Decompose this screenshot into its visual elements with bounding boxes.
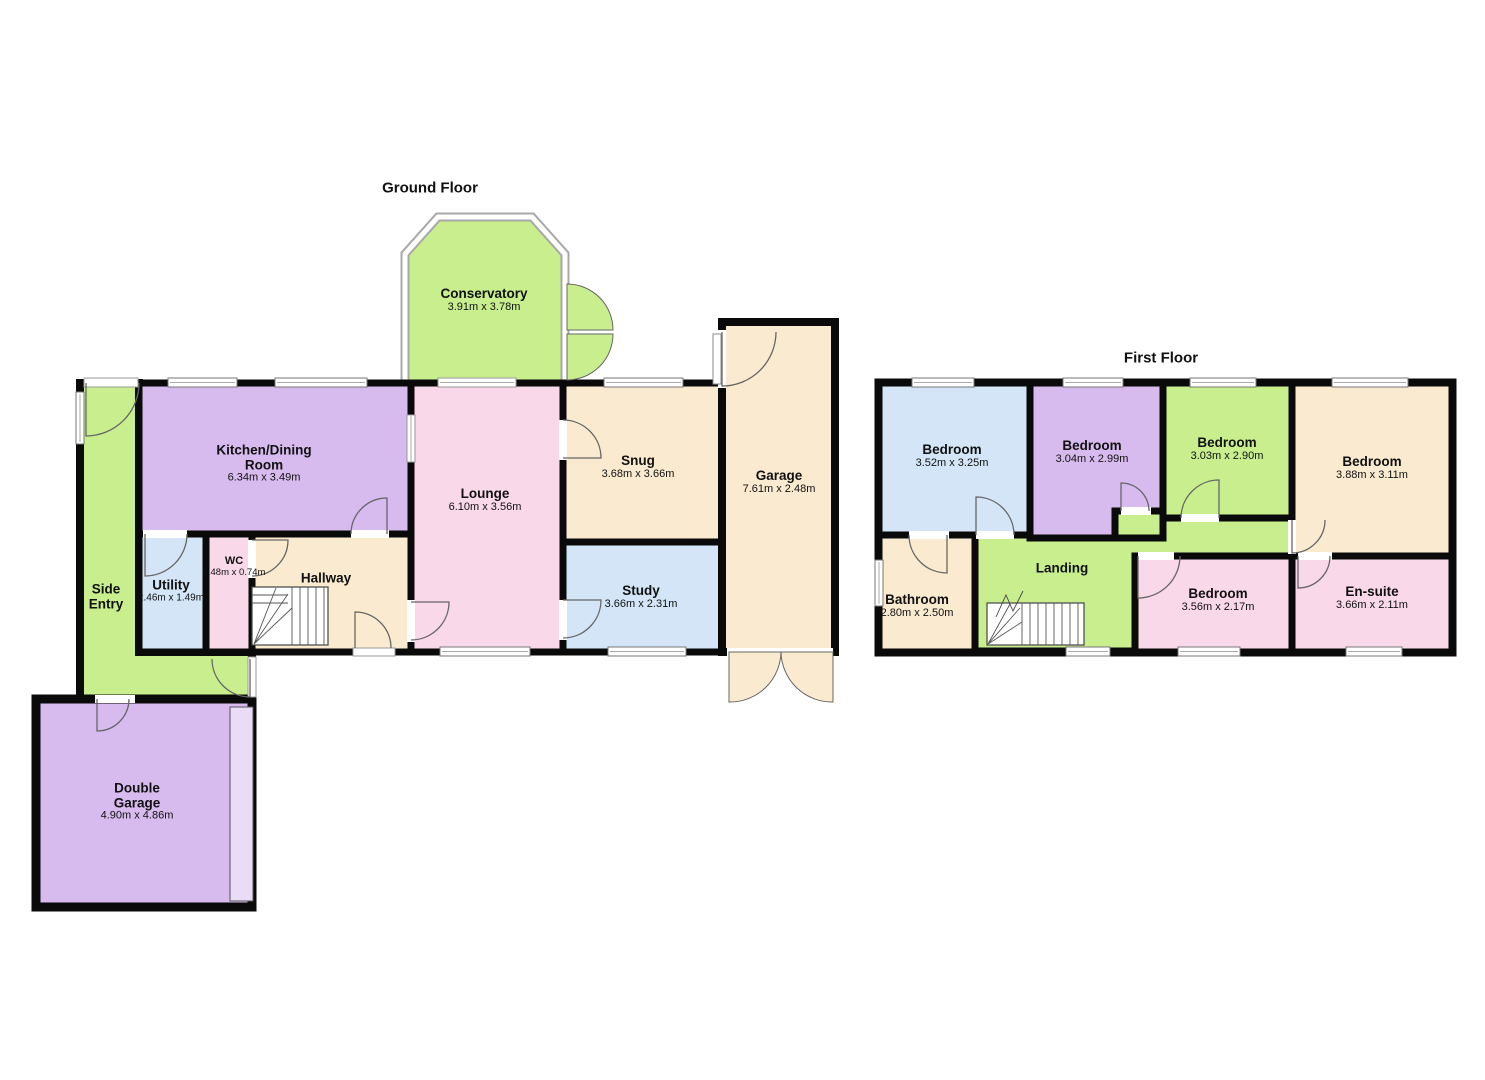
label-bedroom2: Bedroom 3.04m x 2.99m: [1032, 439, 1152, 465]
label-study: Study 3.66m x 2.31m: [581, 584, 701, 610]
label-bedroom5: Bedroom 3.56m x 2.17m: [1158, 587, 1278, 613]
label-landing: Landing: [1012, 562, 1112, 577]
garage-double-doors: [729, 652, 833, 702]
label-utility: Utility 2.46m x 1.49m: [126, 578, 216, 603]
label-lounge: Lounge 6.10m x 3.56m: [425, 487, 545, 513]
label-side-entry: Side Entry: [79, 582, 133, 611]
floorplan-svg: [0, 0, 1485, 1080]
french-doors-conservatory: [567, 284, 613, 380]
landing-notch: [1115, 511, 1163, 538]
floorplan-canvas: Ground Floor First Floor Conservatory 3.…: [0, 0, 1485, 1080]
stairs-ground: [252, 587, 328, 645]
label-bedroom1: Bedroom 3.52m x 3.25m: [892, 443, 1012, 469]
first-floor-title: First Floor: [1124, 350, 1198, 367]
label-conservatory: Conservatory 3.91m x 3.78m: [409, 287, 559, 313]
ground-floor-title: Ground Floor: [382, 180, 478, 197]
label-snug: Snug 3.68m x 3.66m: [578, 454, 698, 480]
room-lounge: [411, 383, 563, 652]
double-garage-door-panel: [230, 707, 253, 901]
label-ensuite: En-suite 3.66m x 2.11m: [1312, 585, 1432, 611]
label-wc: WC 2.48m x 0.74m: [179, 556, 289, 578]
label-bedroom3: Bedroom 3.03m x 2.90m: [1167, 436, 1287, 462]
label-bedroom4: Bedroom 3.88m x 3.11m: [1312, 455, 1432, 481]
label-kitchen-dining: Kitchen/Dining Room 6.34m x 3.49m: [205, 443, 323, 484]
label-double-garage: Double Garage 4.90m x 4.86m: [99, 781, 175, 822]
label-bathroom: Bathroom 2.80m x 2.50m: [862, 593, 972, 619]
label-garage: Garage 7.61m x 2.48m: [724, 469, 834, 495]
label-hallway: Hallway: [281, 572, 371, 587]
